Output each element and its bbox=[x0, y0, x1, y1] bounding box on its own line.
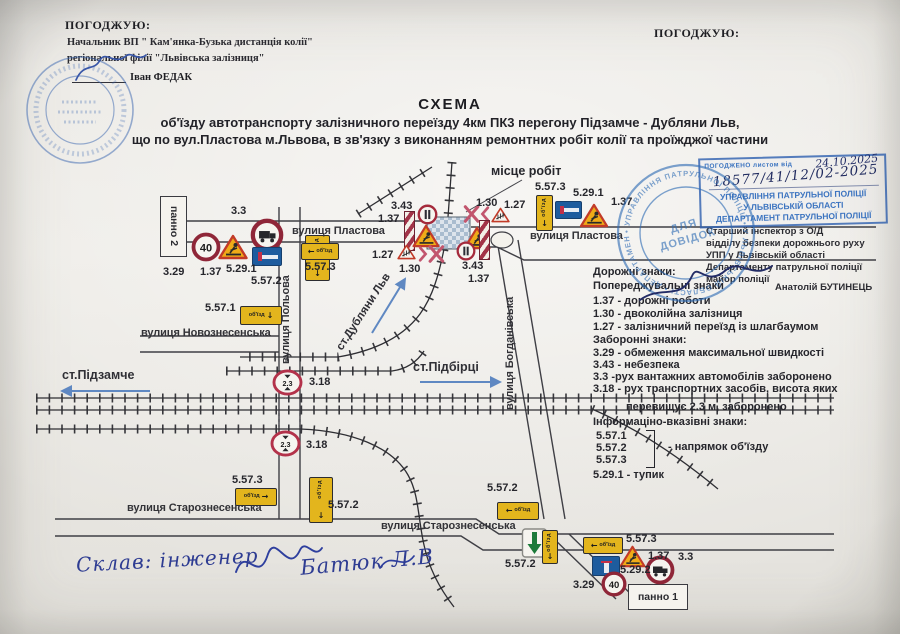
crossing-with-barrier-sign-left bbox=[397, 244, 416, 260]
height-limit-sign-318: 2.3 bbox=[272, 369, 303, 396]
approval-left-line1: Начальник ВП " Кам'янка-Бузька дистанція… bbox=[67, 38, 313, 49]
arrow-left-icon: ← bbox=[308, 248, 315, 256]
legend-warning-heading: Попереджувальні знаки bbox=[593, 281, 724, 292]
approval-rect-stamp: ПОГОДЖЕНО листом від 24.10.2025 18577/41… bbox=[698, 154, 888, 229]
arrow-left-icon: ← bbox=[506, 507, 513, 515]
code-343: 3.43 bbox=[391, 201, 412, 212]
code-329: 3.29 bbox=[163, 267, 184, 278]
panel-2-label: панно 2 bbox=[168, 206, 179, 246]
code-5291: 5.29.1 bbox=[226, 264, 257, 275]
street-plastova-right: вулиця Пластова bbox=[530, 231, 623, 242]
approval-left-line2: регіональної філії "Львівська залізниця" bbox=[67, 54, 264, 65]
legend-item-329: 3.29 - обмеження максимальної швидкості bbox=[593, 348, 824, 359]
inspector-line5: майор поліції bbox=[706, 275, 769, 285]
svg-text:2.3: 2.3 bbox=[282, 379, 292, 388]
code-137: 1.37 bbox=[200, 267, 221, 278]
legend-prohibit-heading: Заборонні знаки: bbox=[593, 335, 687, 346]
code-137: 1.37 bbox=[468, 274, 489, 285]
code-318: 3.18 bbox=[306, 440, 327, 451]
svg-text:2.3: 2.3 bbox=[280, 440, 290, 449]
legend-heading: Дорожні знаки: bbox=[593, 267, 676, 278]
legend-item-5571: 5.57.1 bbox=[596, 431, 627, 442]
code-137: 1.37 bbox=[378, 214, 399, 225]
approval-left-label: ПОГОДЖУЮ: bbox=[65, 19, 151, 31]
approval-right-label: ПОГОДЖУЮ: bbox=[654, 27, 740, 39]
legend-item-318: 3.18 - рух транспортних засобів, висота … bbox=[593, 384, 838, 395]
code-5573: 5.57.3 bbox=[626, 534, 657, 545]
signature-line bbox=[72, 70, 126, 83]
legend-item-127: 1.27 - залізничний переїзд із шлагбаумом bbox=[593, 322, 818, 333]
station-pidbirtsi: ст.Підбірці bbox=[413, 361, 479, 374]
code-329: 3.29 bbox=[573, 580, 594, 591]
stamp-org-line3: ДЕПАРТАМЕНТ ПАТРУЛЬНОЇ ПОЛІЦІЇ bbox=[702, 211, 886, 224]
legend-item-343: 3.43 - небезпека bbox=[593, 360, 680, 371]
legend-item-130: 1.30 - двоколійна залізниця bbox=[593, 309, 742, 320]
danger-sign-343-left bbox=[417, 204, 438, 225]
legend-detour-note: - напрямок об'їзду bbox=[668, 442, 768, 453]
svg-text:40: 40 bbox=[609, 580, 620, 591]
arrow-down-icon: ↓ bbox=[541, 220, 548, 228]
legend-item-33: 3.3 -рух вантажних автомобілів заборонен… bbox=[593, 372, 832, 383]
approval-left-name: Іван ФЕДАК bbox=[130, 73, 192, 84]
code-5572: 5.57.2 bbox=[487, 483, 518, 494]
arrow-down-icon: ↓ bbox=[267, 312, 274, 320]
code-33: 3.3 bbox=[678, 552, 693, 563]
detour-sign-5573-left: ←об'їзд bbox=[301, 243, 339, 260]
code-137: 1.37 bbox=[648, 551, 669, 562]
roadworks-triangle-sign bbox=[218, 234, 248, 260]
inspector-line1: Старший інспектор з О/Д bbox=[706, 227, 823, 237]
scanned-document: ПОГОДЖУЮ: Начальник ВП " Кам'янка-Бузька… bbox=[0, 0, 900, 634]
code-5292: 5.29.2 bbox=[620, 565, 651, 576]
legend-item-5573: 5.57.3 bbox=[596, 455, 627, 466]
arrow-left-icon: ← bbox=[591, 542, 598, 550]
arrow-down-icon: ↓ bbox=[318, 512, 325, 520]
title-line1: об'їзду автотранспорту залізничного пере… bbox=[0, 115, 900, 131]
inspector-line2: відділу безпеки дорожнього руху bbox=[706, 239, 865, 249]
legend-item-5572: 5.57.2 bbox=[596, 443, 627, 454]
street-plastova-left: вулиця Пластова bbox=[292, 226, 385, 237]
street-staroznesenska-left: вулиця Старознесенська bbox=[127, 503, 261, 514]
height-limit-sign-318: 2.3 bbox=[270, 430, 301, 457]
code-5572: 5.57.2 bbox=[505, 559, 536, 570]
legend-item-5291: 5.29.1 - тупик bbox=[593, 470, 664, 481]
detour-sign-5573-vertical: об'їзд↓ bbox=[536, 195, 553, 231]
detour-sign-5571: об'їзд↓ bbox=[240, 306, 282, 325]
detour-sign-5572-right: ←об'їзд bbox=[497, 502, 539, 520]
code-130: 1.30 bbox=[476, 198, 497, 209]
inspector-name: Анатолій БУТИНЕЦЬ bbox=[775, 283, 872, 293]
speed-limit-40-sign: 40 bbox=[191, 232, 221, 262]
code-137: 1.37 bbox=[611, 197, 632, 208]
inspector-line3: УПП у Львівській області bbox=[706, 251, 825, 261]
code-5573: 5.57.3 bbox=[305, 262, 336, 273]
detour-sign-vertical-small: об'їзд↓ bbox=[542, 530, 558, 564]
panel-1-box: панно 1 bbox=[628, 584, 688, 610]
striped-barrier-right bbox=[479, 220, 490, 260]
street-bohdanivska: вулиця Богданівська bbox=[505, 280, 516, 410]
dead-end-sign-5291 bbox=[555, 201, 582, 219]
danger-sign-343-right bbox=[456, 241, 476, 261]
code-343: 3.43 bbox=[462, 261, 483, 272]
code-318: 3.18 bbox=[309, 377, 330, 388]
legend-bracket bbox=[646, 430, 655, 468]
detour-sign-5573-bottomright: ←об'їзд bbox=[583, 537, 623, 554]
street-staroznesenska-right: вулиця Старознесенська bbox=[381, 521, 515, 532]
page-title: СХЕМА bbox=[0, 97, 900, 112]
roadworks-triangle-sign bbox=[579, 203, 609, 228]
legend-item-137: 1.37 - дорожні роботи bbox=[593, 296, 711, 307]
legend-item-318-cont: перевищує 2.3 м, заборонено bbox=[626, 402, 787, 413]
inspector-line4: Департаменту патрульної поліції bbox=[706, 263, 862, 273]
panel-2-box: панно 2 bbox=[160, 196, 187, 257]
street-polova: вулиця Польова bbox=[281, 252, 292, 364]
code-127: 1.27 bbox=[372, 250, 393, 261]
arrow-right-icon: → bbox=[262, 493, 269, 501]
panel-1-label: панно 1 bbox=[638, 592, 678, 603]
st-andrew-cross-sign-left bbox=[417, 245, 445, 263]
arrow-down-icon: ↓ bbox=[547, 553, 554, 561]
worksite-label: місце робіт bbox=[491, 165, 561, 178]
code-5571: 5.57.1 bbox=[205, 303, 236, 314]
code-33: 3.3 bbox=[231, 206, 246, 217]
code-5573: 5.57.3 bbox=[232, 475, 263, 486]
station-pidzamche: ст.Підзамче bbox=[62, 369, 134, 382]
road-oval-mark bbox=[491, 232, 513, 248]
code-130: 1.30 bbox=[399, 264, 420, 275]
code-127: 1.27 bbox=[504, 200, 525, 211]
title-line2: що по вул.Пластова м.Львова, в зв'язку з… bbox=[0, 132, 900, 148]
code-5291: 5.29.1 bbox=[573, 188, 604, 199]
svg-text:40: 40 bbox=[200, 243, 212, 255]
street-novoznesenska: вулиця Новознесенська bbox=[141, 328, 271, 339]
code-5573: 5.57.3 bbox=[535, 182, 566, 193]
code-5572: 5.57.2 bbox=[328, 500, 359, 511]
code-5572: 5.57.2 bbox=[251, 276, 282, 287]
legend-info-heading: Інформаціно-вказівні знаки: bbox=[593, 417, 747, 428]
